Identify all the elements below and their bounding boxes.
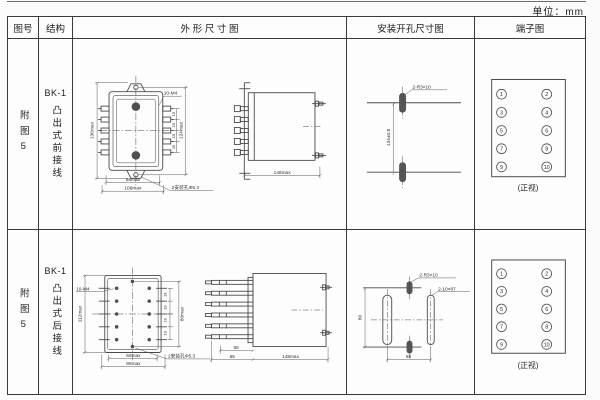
dim-label-thread: 10-M4 — [164, 91, 178, 97]
dim-label-side-length: 148max — [274, 170, 292, 176]
dim-label-height-outer: 136max — [90, 121, 96, 139]
dim-label-slot-height: 80 — [358, 314, 364, 320]
header-structure: 结构 — [39, 17, 73, 39]
dim-label-thread: 10-M4 — [76, 286, 90, 292]
terminal-diagram-cell: 1 2 3 4 5 6 7 8 9 10 (正视) — [475, 39, 585, 230]
dim-label-pitch: 19 — [171, 144, 176, 149]
structure-cell: BK-1 凸出式前接线 — [39, 39, 73, 230]
mounting-hole-drawing: 134±0.8 2-R3×10 — [347, 39, 474, 229]
mounting-drawing-cell: 80 68 2-R3×10 2-10×87 — [347, 230, 475, 394]
dim-label-slot: 2-R3×10 — [412, 84, 431, 90]
header-mounting-dims-label: 安装开孔尺寸图 — [377, 21, 444, 35]
terminal-number: 5 — [500, 128, 503, 134]
terminal-number: 2 — [545, 272, 548, 278]
dim-label-slot-spacing: 68 — [406, 354, 412, 360]
header-terminal-diagram: 端子图 — [475, 17, 585, 39]
dim-label-large-slot: 2-10×87 — [438, 286, 456, 292]
dim-label-pitch: 19 — [163, 293, 168, 297]
page: 单位：mm 图号 结构 外 形 尺 寸 图 安装开孔尺寸图 端子图 附图5 BK… — [0, 0, 600, 400]
dim-label-width-inner: 68max — [126, 353, 141, 359]
page-top-rule — [7, 1, 586, 2]
header-mounting-dims: 安装开孔尺寸图 — [347, 17, 475, 39]
terminal-number: 1 — [500, 92, 503, 98]
structure-cell: BK-1 凸出式后接线 — [39, 230, 73, 394]
terminal-number: 6 — [545, 307, 548, 313]
figure-no-cell: 附图5 — [8, 230, 39, 394]
dim-label-hole-note: 2安装孔Φ5.3 — [172, 184, 200, 191]
dim-label-offset: 65 — [230, 354, 236, 360]
dim-label-width-outer: 88max — [126, 361, 141, 367]
outline-drawing-cell: 136max 124max 19 19 19 19 10-M4 98max 10… — [73, 39, 347, 230]
figure-no-text: 附图5 — [18, 110, 28, 158]
header-figure-no: 图号 — [8, 17, 39, 39]
dim-label-width-outer: 106max — [124, 186, 142, 192]
terminal-number: 2 — [545, 92, 548, 98]
terminal-number: 8 — [545, 147, 548, 153]
dim-label-hole-note: 2安装孔Φ5.3 — [168, 352, 196, 359]
dim-label-pitch: 19 — [171, 111, 176, 116]
dim-label-pitch: 19 — [163, 331, 168, 335]
terminal-number: 9 — [500, 342, 503, 348]
dim-label-small-slot: 2-R3×10 — [419, 272, 438, 278]
dim-label-height-outer: 112max — [78, 305, 84, 322]
terminal-number: 1 — [500, 272, 503, 278]
header-terminal-diagram-label: 端子图 — [516, 21, 545, 35]
model-text: BK-1 — [44, 266, 66, 276]
terminal-caption: (正视) — [518, 360, 539, 370]
terminal-diagram-cell: 1 2 3 4 5 6 7 8 9 10 (正视) — [475, 230, 585, 394]
figure-no-text: 附图5 — [18, 288, 28, 336]
structure-text: 凸出式后接线 — [51, 283, 61, 358]
terminal-diagram: 1 2 3 4 5 6 7 8 9 10 (正视) — [475, 230, 585, 394]
dim-label-hole-spacing: 134±0.8 — [386, 129, 392, 146]
outline-dimension-drawing: 136max 124max 19 19 19 19 10-M4 98max 10… — [73, 39, 346, 229]
terminal-number: 7 — [500, 147, 503, 153]
figure-no-cell: 附图5 — [8, 39, 39, 230]
terminal-number: 8 — [545, 325, 548, 331]
outline-drawing-cell: 10-M4 112max 19 19 19 19 80max 68max 88m… — [73, 230, 347, 394]
dim-label-stud: 55 — [234, 345, 240, 351]
header-structure-label: 结构 — [46, 21, 65, 35]
terminal-number: 6 — [545, 128, 548, 134]
dim-label-side-length: 148max — [282, 354, 299, 360]
model-text: BK-1 — [44, 88, 66, 98]
terminal-caption: (正视) — [518, 182, 539, 192]
dim-label-width-inner: 98max — [126, 177, 141, 183]
header-figure-no-label: 图号 — [13, 21, 32, 35]
header-outline-dims: 外 形 尺 寸 图 — [73, 17, 347, 39]
dim-label-pitch: 19 — [171, 122, 176, 127]
terminal-number: 3 — [500, 289, 503, 295]
dim-label-height-inner: 80max — [179, 306, 185, 321]
header-outline-dims-label: 外 形 尺 寸 图 — [180, 21, 238, 35]
terminal-number: 9 — [500, 165, 503, 171]
terminal-number: 3 — [500, 110, 503, 116]
mounting-hole-drawing: 80 68 2-R3×10 2-10×87 — [347, 230, 474, 394]
dim-label-height-inner: 124max — [179, 121, 185, 139]
terminal-number: 5 — [500, 307, 503, 313]
terminal-number: 4 — [545, 110, 548, 116]
structure-text: 凸出式前接线 — [51, 105, 61, 180]
terminal-diagram: 1 2 3 4 5 6 7 8 9 10 (正视) — [475, 39, 585, 229]
dim-label-pitch: 19 — [163, 318, 168, 322]
terminal-number: 7 — [500, 325, 503, 331]
dim-label-pitch: 19 — [171, 133, 176, 138]
spec-table: 图号 结构 外 形 尺 寸 图 安装开孔尺寸图 端子图 附图5 BK-1 凸出式… — [7, 16, 586, 395]
dim-label-pitch: 19 — [163, 305, 168, 309]
terminal-number: 4 — [545, 289, 548, 295]
terminal-number: 10 — [544, 342, 550, 348]
terminal-number: 10 — [544, 165, 550, 171]
outline-dimension-drawing: 10-M4 112max 19 19 19 19 80max 68max 88m… — [73, 230, 346, 394]
mounting-drawing-cell: 134±0.8 2-R3×10 — [347, 39, 475, 230]
